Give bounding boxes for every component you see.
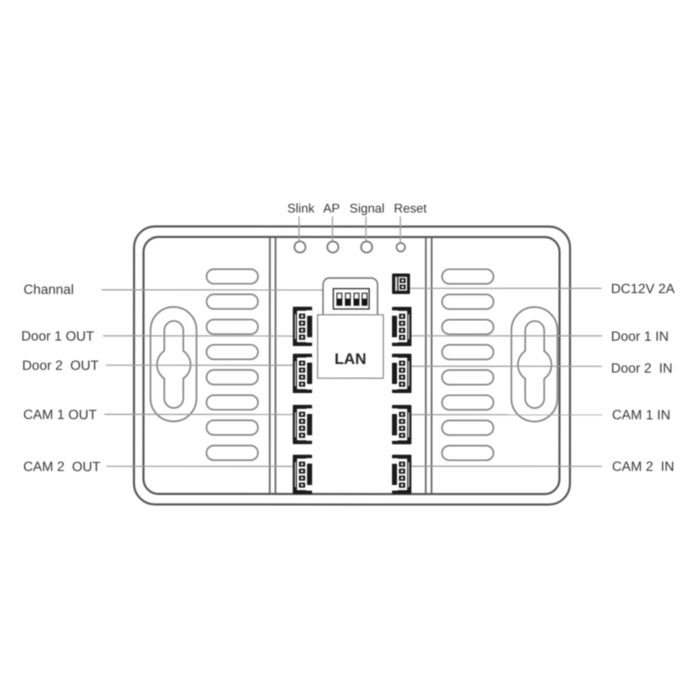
svg-text:Door 1 IN: Door 1 IN: [611, 329, 669, 344]
svg-text:Channal: Channal: [24, 282, 74, 297]
svg-text:Slink: Slink: [287, 201, 315, 215]
svg-text:AP: AP: [323, 201, 340, 215]
svg-text:CAM 1 IN: CAM 1 IN: [612, 407, 671, 422]
svg-text:LAN: LAN: [334, 351, 366, 368]
svg-text:Door 2 OUT: Door 2 OUT: [22, 358, 99, 373]
svg-text:CAM 2 OUT: CAM 2 OUT: [23, 459, 100, 474]
svg-text:DC12V 2A: DC12V 2A: [611, 281, 675, 296]
svg-text:CAM 1 OUT: CAM 1 OUT: [23, 407, 97, 422]
svg-text:Signal: Signal: [350, 201, 385, 215]
svg-text:Reset: Reset: [394, 202, 427, 216]
svg-text:Door 1 OUT: Door 1 OUT: [21, 329, 94, 344]
svg-text:Door 2 IN: Door 2 IN: [611, 361, 673, 376]
svg-text:CAM 2 IN: CAM 2 IN: [612, 459, 674, 474]
